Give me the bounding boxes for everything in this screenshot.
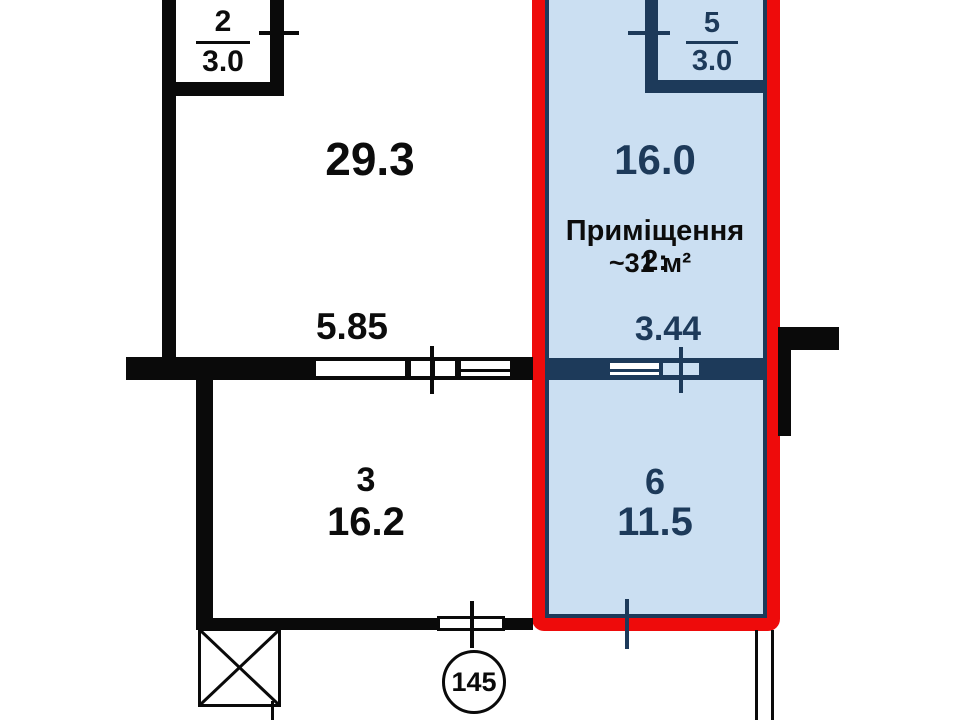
fraction-line — [196, 41, 250, 44]
thin-wall-line — [755, 630, 758, 720]
window-icon — [312, 357, 409, 380]
floor-plan: 2 3.0 29.3 5.85 3 16.2 5 3.0 16.0 Приміщ… — [0, 0, 960, 720]
room2-label: 2 3.0 — [183, 6, 263, 77]
wall-room2-bottom — [162, 82, 284, 96]
room3-area: 16.2 — [306, 501, 426, 543]
wall-bottom-right — [505, 618, 533, 630]
thin-wall-line — [771, 630, 774, 720]
thin-wall-line — [271, 701, 274, 720]
wall-left-lower — [196, 377, 213, 628]
wall-left-upper — [162, 0, 176, 379]
wall-right-vertical — [778, 350, 791, 436]
room6-area: 11.5 — [595, 501, 715, 543]
dimension-3-44: 3.44 — [608, 312, 728, 348]
dimension-tick-icon — [259, 31, 299, 35]
window-narrow-icon — [457, 357, 514, 380]
room5-number: 5 — [672, 8, 752, 38]
window-blue-icon — [607, 360, 662, 378]
room6-number: 6 — [595, 463, 715, 501]
room16-area: 16.0 — [585, 138, 725, 182]
room-main-area: 29.3 — [300, 135, 440, 183]
wall-room5-bottom — [645, 80, 763, 93]
dimension-tick-icon — [470, 601, 474, 648]
room2-number: 2 — [183, 6, 263, 38]
dimension-tick-icon — [679, 347, 683, 393]
dimension-5-85: 5.85 — [292, 308, 412, 347]
wall-room2-right — [270, 0, 284, 84]
wall-middle-left — [126, 357, 313, 380]
crossed-box-icon — [198, 628, 281, 707]
room3-number: 3 — [306, 463, 426, 499]
room2-area: 3.0 — [183, 46, 263, 78]
dimension-tick-icon — [628, 31, 670, 35]
dimension-tick-icon — [430, 346, 434, 394]
unit-number: 145 — [451, 667, 496, 698]
highlight-area-note: ~31 м² — [555, 249, 745, 277]
wall-middle-right — [512, 357, 533, 380]
wall-right-horizontal — [778, 327, 839, 350]
unit-number-circle: 145 — [442, 650, 506, 714]
room5-area: 3.0 — [672, 46, 752, 76]
room5-label: 5 3.0 — [672, 8, 752, 77]
fraction-line — [686, 41, 738, 44]
dimension-tick-icon — [625, 599, 629, 649]
